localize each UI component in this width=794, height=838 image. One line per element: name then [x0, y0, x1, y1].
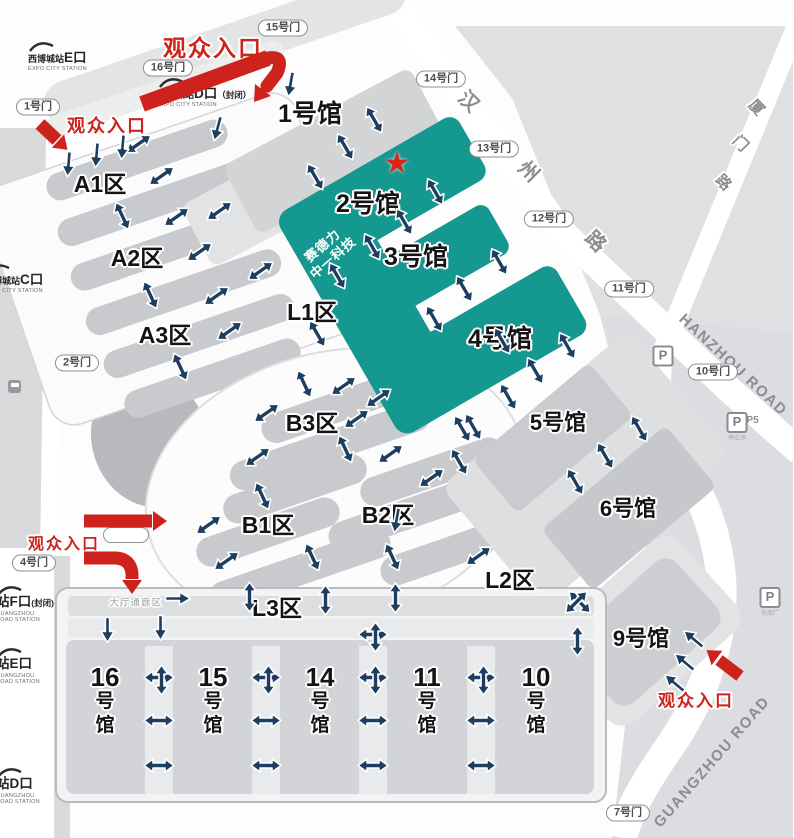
road-label-xiamen-char: 厦 — [744, 94, 769, 119]
station-suffix: （封闭） — [217, 90, 251, 100]
double-arrow-icon — [143, 713, 175, 733]
road-label-hanzhou-char: 州 — [513, 153, 548, 188]
double-arrow-icon — [480, 244, 513, 282]
zone-label: A3区 — [139, 316, 191, 350]
double-arrow-icon — [565, 625, 585, 657]
double-arrow-icon — [243, 256, 281, 291]
hall-char: 馆 — [199, 714, 228, 738]
hall-char: 馆 — [413, 714, 441, 738]
station-name-en: EXPO CITY STATION — [28, 67, 87, 73]
road-label-hanzhou-char: 路 — [580, 223, 615, 258]
double-arrow-icon — [327, 431, 359, 468]
metro-station-label: 西博城站D口（封闭）EXPO CITY STATION — [158, 78, 251, 109]
double-arrow-icon — [415, 301, 448, 339]
zone-label: L2区 — [485, 561, 535, 595]
parking-icon: P — [727, 412, 748, 433]
hall-number: 15 — [199, 665, 228, 690]
double-arrow-icon — [286, 366, 318, 403]
gate-pill: 10号门 — [688, 364, 738, 381]
double-arrow-icon — [199, 281, 237, 316]
gate-pill: 15号门 — [258, 20, 308, 37]
gate-pill: 7号门 — [606, 805, 650, 822]
single-arrow-icon — [55, 150, 77, 179]
hall-number: 11 — [413, 665, 441, 690]
double-arrow-icon — [465, 713, 497, 733]
gate-pill: 12号门 — [524, 211, 574, 228]
zone-label: A2区 — [111, 239, 163, 273]
station-name-en: GUANGZHOU ROAD STATION — [0, 611, 44, 623]
gate-pill: 2号门 — [55, 355, 99, 372]
cross-arrow-icon — [363, 621, 383, 653]
parking-icon: P — [760, 587, 781, 608]
station-name-prefix: 西博城站 — [0, 276, 20, 286]
station-name-en: EXPO CITY STATION — [0, 289, 43, 295]
double-arrow-icon — [416, 174, 449, 212]
double-arrow-icon — [159, 202, 197, 237]
double-arrow-icon — [212, 316, 250, 351]
hall-label-vertical: 14号馆 — [306, 665, 335, 738]
cross-arrow-icon — [256, 664, 276, 696]
hall-number: 14 — [306, 665, 335, 690]
single-arrow-icon — [382, 505, 406, 535]
double-arrow-icon — [465, 758, 497, 778]
gate-pill: 4号门 — [12, 555, 56, 572]
station-exit: 站E口 — [0, 656, 32, 671]
double-arrow-icon — [326, 371, 364, 406]
double-arrow-icon — [143, 758, 175, 778]
visitor-entrance-label: 观众入口 — [67, 112, 147, 138]
hall-label-vertical: 11号馆 — [413, 665, 441, 738]
double-arrow-icon — [209, 546, 247, 581]
star-marker: ★ — [384, 149, 411, 179]
station-exit: E口 — [64, 50, 87, 65]
hall-char: 馆 — [306, 714, 335, 738]
double-arrow-icon — [357, 758, 389, 778]
double-arrow-icon — [202, 196, 240, 231]
road-label-guangzhou-en: GUANGZHOU ROAD — [651, 693, 774, 831]
station-exit: C口 — [20, 272, 43, 287]
gate-pill: 14号门 — [416, 71, 466, 88]
parking-note: 东南广 — [760, 608, 781, 617]
station-name-en: EXPO CITY STATION — [158, 103, 251, 109]
single-arrow-icon — [109, 133, 131, 162]
hall-number: 16 — [91, 665, 120, 690]
parking-area: P — [653, 346, 674, 367]
double-arrow-icon — [586, 438, 619, 476]
metro-station-label: 站F口(封闭)GUANGZHOU ROAD STATION — [0, 586, 54, 623]
double-arrow-icon — [548, 328, 581, 366]
hall-char: 号 — [306, 690, 335, 714]
double-arrow-icon — [132, 277, 164, 314]
double-arrow-icon — [296, 159, 329, 197]
station-exit: 站F口 — [0, 594, 31, 609]
parking-area: P东南广 — [760, 587, 781, 617]
road-label-xiamen-char: 路 — [711, 169, 736, 194]
double-arrow-icon — [182, 237, 220, 272]
visitor-entrance-label: 观众入口 — [163, 29, 263, 63]
double-arrow-icon — [250, 713, 282, 733]
hall-label-vertical: 15号馆 — [199, 665, 228, 738]
double-arrow-icon — [383, 582, 403, 614]
double-arrow-icon — [191, 510, 229, 545]
station-exit: D口 — [194, 86, 217, 101]
station-exit: 站D口 — [0, 776, 33, 791]
double-arrow-icon — [556, 464, 589, 502]
visitor-entrance-label: 观众入口 — [658, 687, 734, 712]
double-arrow-icon — [620, 411, 653, 449]
double-arrow-icon — [373, 439, 411, 474]
zone-label: L3区 — [252, 589, 302, 623]
gate-pill: 13号门 — [469, 141, 519, 158]
double-arrow-icon — [162, 349, 194, 386]
double-arrow-icon — [414, 463, 452, 498]
station-name-prefix: 西博城站 — [158, 90, 194, 100]
double-arrow-icon — [516, 353, 549, 391]
hall-char: 馆 — [91, 714, 120, 738]
road-label-xiamen-char: 门 — [728, 130, 753, 155]
single-arrow-icon — [165, 591, 192, 611]
double-arrow-icon — [489, 379, 522, 417]
gate-pill: 16号门 — [143, 60, 193, 77]
station-name-en: GUANGZHOU ROAD STATION — [0, 673, 44, 685]
metro-station-label: 西博城站E口EXPO CITY STATION — [28, 42, 87, 73]
double-arrow-icon — [353, 229, 386, 267]
hall-label: 1号馆 — [278, 94, 342, 130]
hall-char: 号 — [199, 690, 228, 714]
double-arrow-icon — [250, 758, 282, 778]
hall-label: 6号馆 — [600, 491, 656, 523]
double-arrow-icon — [355, 102, 388, 140]
double-arrow-icon — [237, 581, 257, 613]
cross-arrow-icon — [471, 664, 491, 696]
hall-label: 5号馆 — [530, 405, 586, 437]
corridor-label: 大厅通廊区 — [110, 596, 163, 609]
station-name-prefix: 西博城站 — [28, 54, 64, 64]
parking-note: 停车场 — [727, 433, 748, 442]
station-name-en: GUANGZHOU ROAD STATION — [0, 793, 44, 805]
metro-station-label: 西博城站C口EXPO CITY STATION — [0, 264, 43, 295]
double-arrow-icon — [249, 398, 287, 433]
double-arrow-icon — [240, 442, 278, 477]
zone-label: B3区 — [286, 404, 338, 438]
double-arrow-icon — [313, 584, 333, 616]
hall-label-vertical: 10号馆 — [522, 665, 551, 738]
hall-char: 号 — [522, 690, 551, 714]
cross-arrow-icon — [149, 664, 169, 696]
double-arrow-icon — [357, 713, 389, 733]
visitor-entrance-label: 观众入口 — [28, 530, 100, 554]
gate-pill: 11号门 — [604, 281, 654, 298]
hall-char: 号 — [413, 690, 441, 714]
zone-label: B1区 — [242, 506, 294, 540]
hall-char: 馆 — [522, 714, 551, 738]
parking-sub-label: P5 — [747, 415, 759, 426]
double-arrow-icon — [318, 258, 351, 296]
road-label-hanzhou-char: 汉 — [453, 83, 488, 118]
double-arrow-icon — [374, 539, 406, 576]
single-arrow-icon — [202, 112, 228, 143]
gate-pill: 1号门 — [16, 99, 60, 116]
station-suffix: (封闭) — [31, 598, 54, 608]
single-arrow-icon — [83, 141, 105, 170]
hall-label-vertical: 16号馆 — [91, 665, 120, 738]
hall-label: 3号馆 — [384, 237, 448, 273]
hall-number: 10 — [522, 665, 551, 690]
single-arrow-icon — [95, 617, 115, 644]
double-arrow-icon — [294, 539, 326, 576]
single-arrow-icon — [148, 615, 168, 642]
double-arrow-icon — [326, 129, 359, 167]
metro-station-label: 站D口GUANGZHOU ROAD STATION — [0, 768, 44, 805]
gate-pill — [103, 527, 149, 543]
exhibition-center-map: 赛德力 中一科技 大厅通廊区 HANZHOU ROAD GUANGZHOU RO… — [0, 0, 794, 838]
parking-icon: P — [653, 346, 674, 367]
cross-arrow-icon — [363, 664, 383, 696]
double-arrow-icon — [144, 161, 182, 196]
double-arrow-icon — [104, 198, 136, 235]
parking-area: PP5停车场 — [727, 412, 748, 442]
hall-label: 9号馆 — [613, 621, 669, 653]
bus-stop-icon — [8, 380, 21, 393]
hall-char: 号 — [91, 690, 120, 714]
zone-label: A1区 — [74, 165, 126, 199]
double-arrow-icon — [445, 271, 478, 309]
metro-station-label: 站E口GUANGZHOU ROAD STATION — [0, 648, 44, 685]
double-arrow-icon — [560, 586, 597, 623]
